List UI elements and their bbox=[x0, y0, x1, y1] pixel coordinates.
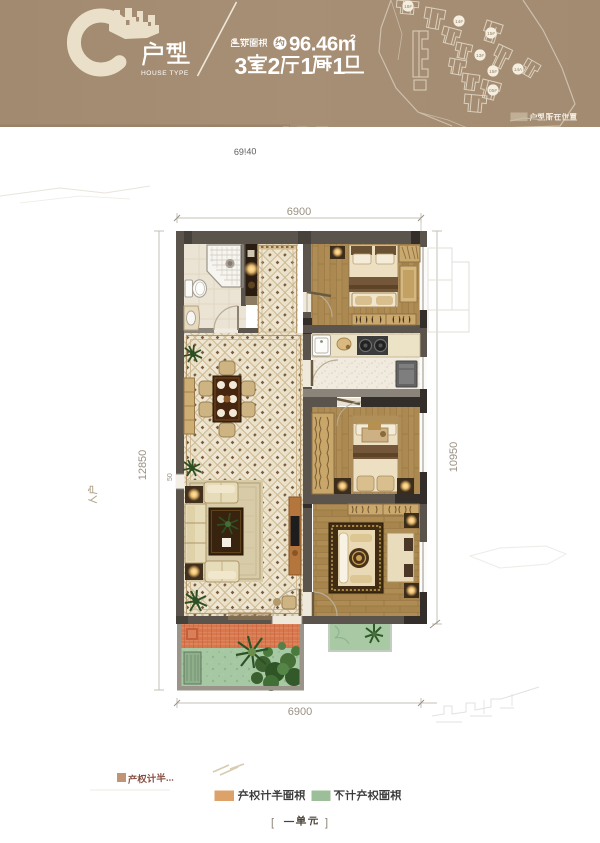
svg-text:2: 2 bbox=[268, 53, 281, 79]
svg-text:14A: 14A bbox=[514, 67, 523, 72]
svg-text:[: [ bbox=[271, 817, 274, 829]
svg-text:69!40: 69!40 bbox=[234, 146, 257, 157]
svg-text:10950: 10950 bbox=[448, 442, 460, 473]
svg-text:13#: 13# bbox=[476, 53, 484, 58]
svg-text:2: 2 bbox=[350, 33, 356, 45]
svg-text:15#: 15# bbox=[489, 69, 497, 74]
svg-text:产权计半...: 产权计半... bbox=[128, 772, 174, 786]
svg-text:50: 50 bbox=[167, 473, 174, 481]
svg-text:HOUSE TYPE: HOUSE TYPE bbox=[141, 70, 189, 77]
svg-text:6900: 6900 bbox=[287, 206, 311, 218]
svg-text:1: 1 bbox=[301, 53, 314, 79]
svg-text:96.46m: 96.46m bbox=[289, 33, 356, 56]
svg-text:6900: 6900 bbox=[288, 706, 312, 718]
svg-text:]: ] bbox=[325, 817, 328, 829]
svg-text:3: 3 bbox=[235, 53, 248, 79]
svg-text:12850: 12850 bbox=[137, 450, 149, 481]
svg-text:15#: 15# bbox=[487, 31, 495, 36]
svg-text:1: 1 bbox=[333, 53, 346, 79]
svg-text:14#: 14# bbox=[455, 19, 463, 24]
svg-text:18#: 18# bbox=[404, 4, 412, 9]
svg-text:05#: 05# bbox=[489, 88, 497, 93]
